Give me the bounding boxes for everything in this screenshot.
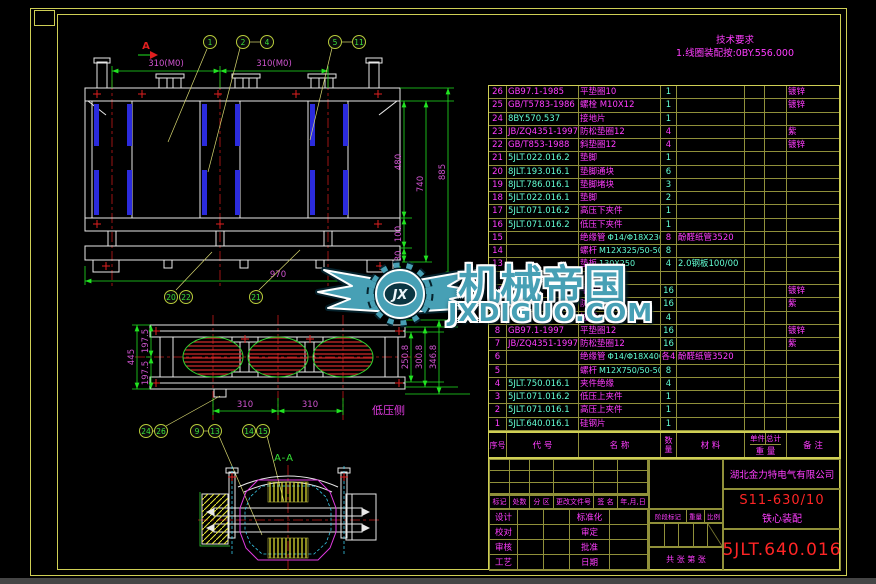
cell-tot [765,272,787,285]
cell-qty: 2 [661,192,677,205]
sign-label: 审核 [490,540,518,555]
cell-tot [765,258,787,271]
cell-qty: 4 [661,312,677,325]
rev-label: 年,月,日 [618,496,648,508]
cell-num: 1 [489,418,507,431]
cell-unit [745,365,765,378]
col-header-total-weight: 总计 [766,433,781,445]
cell-code: 5JLT.071.016.2 [507,219,579,232]
cell-code: 5JLT.071.016.2 [507,205,579,218]
revision-grid [489,459,649,495]
part-row: 23JB/ZQ4351-1997防松垫圈124紫 [489,126,839,139]
cell-qty [661,272,677,285]
cell-num: 19 [489,179,507,192]
front-dim-texts: 310(M0) 310(M0) 480 100 30 740 885 970 [148,59,448,280]
cell-tot [765,192,787,205]
parts-table-header: 序号 代 号 名 称 数量 材 料 单件 总计 重 量 备 注 [488,432,840,458]
svg-text:885: 885 [438,164,448,180]
cell-rem [787,258,839,271]
cell-tot [765,338,787,351]
cell-num: 24 [489,113,507,126]
cell-num [489,272,507,285]
title-block: 标记 处数 分 区 更改文件号 签 名 年,月,日 设计 标准化 校对 审定 审… [488,458,840,570]
svg-text:11: 11 [354,38,364,47]
cell-qty: 1 [661,113,677,126]
cell-unit [745,192,765,205]
cell-unit [745,86,765,99]
front-balloons: 1 2 4 5 11 20 22 21 [165,36,366,304]
cell-rem: 紫 [787,338,839,351]
cell-name: 低压下夹件 [579,219,661,232]
stage-cells [649,523,723,547]
cell-name: 绝缘管Φ14/Φ18X400.460 [579,351,661,364]
svg-text:14: 14 [244,427,254,436]
cell-qty: 1 [661,86,677,99]
scale-label: 比例 [705,510,722,522]
cell-name: 防松垫圈12 [579,126,661,139]
cell-num: 25 [489,99,507,112]
cell-num: 17 [489,205,507,218]
cell-tot [765,312,787,325]
rev-label: 分 区 [530,496,554,508]
cell-code [507,298,579,311]
cell-unit [745,391,765,404]
cell-rem: 紫 [787,126,839,139]
company-name: 湖北金力特电气有限公司 [723,459,841,489]
cell-rem: 镀锌 [787,139,839,152]
cell-num: 8 [489,325,507,338]
part-row: 198JLT.786.016.1垫脚堵块3 [489,179,839,192]
col-header-num: 序号 [489,433,507,457]
technical-requirements: 技术要求 1.线圈装配按:0BY.556.000 [640,34,830,60]
cell-rem [787,404,839,417]
cell-rem [787,179,839,192]
cell-code: 5JLT.022.016.2 [507,152,579,165]
sign-label: 设计 [490,510,518,525]
cell-unit [745,126,765,139]
cell-mat [677,205,745,218]
cell-tot [765,126,787,139]
part-row: 8GB97.1-1997平垫圈1216镀锌 [489,325,839,338]
cell-qty: 8 [661,365,677,378]
cell-code [507,351,579,364]
svg-text:740: 740 [416,176,426,192]
rev-label: 标记 [490,496,510,508]
part-row: 9拉带4 [489,312,839,325]
stage-label: 阶段标记 [650,510,687,522]
cell-name: 垫脚 [579,152,661,165]
svg-text:100: 100 [394,226,404,242]
svg-text:4: 4 [265,38,270,47]
cell-tot [765,152,787,165]
cell-code: 5JLT.750.016.1 [507,378,579,391]
sign-label: 校对 [490,525,518,540]
weight-label: 重量 [687,510,705,522]
cell-name: 垫脚 [579,192,661,205]
cell-name: 防松垫圈12 [579,338,661,351]
cell-mat [677,219,745,232]
revision-header: 标记 处数 分 区 更改文件号 签 名 年,月,日 [489,495,649,509]
cell-unit [745,258,765,271]
cell-rem [787,391,839,404]
svg-text:250.8: 250.8 [401,345,411,369]
cell-qty: 1 [661,219,677,232]
cell-code: GB/T853-1988 [507,139,579,152]
svg-text:A: A [142,41,150,52]
col-header-remark: 备 注 [787,433,839,457]
tech-req-line: 1.线圈装配按:0BY.556.000 [640,47,830,60]
cell-num: 18 [489,192,507,205]
cell-qty: 4 [661,126,677,139]
window-edge [0,578,876,584]
svg-text:1: 1 [208,38,213,47]
part-row: 22GB/T853-1988斜垫圈124镀锌 [489,139,839,152]
cell-unit [745,113,765,126]
cell-mat [677,139,745,152]
cell-unit [745,219,765,232]
cell-unit [745,325,765,338]
cell-name: 螺杆M12X750/50-50 [579,365,661,378]
cell-mat [677,272,745,285]
cell-mat: 2.0钢板100/00 [677,258,745,271]
cell-name: 螺杆M12X325/50-50 [579,245,661,258]
cell-mat [677,391,745,404]
cell-qty: 1 [661,152,677,165]
cell-mat [677,179,745,192]
cell-code: 8JLT.786.016.1 [507,179,579,192]
cell-mat [677,285,745,298]
svg-text:9: 9 [195,427,200,436]
cell-tot [765,285,787,298]
lv-side-label: 低压侧 [372,404,405,417]
cell-name: 斜垫圈12 [579,139,661,152]
cell-rem [787,365,839,378]
cell-qty: 4 [661,258,677,271]
cell-tot [765,325,787,338]
cell-rem [787,232,839,245]
svg-text:197.5: 197.5 [141,361,151,385]
scale-diagonal [708,524,722,546]
cell-name: 螺栓 M10X12 [579,99,661,112]
svg-text:300.8: 300.8 [415,345,425,369]
cell-unit [745,166,765,179]
empty-box [649,459,723,509]
cell-rem: 镀锌 [787,285,839,298]
stage-header: 阶段标记 重量 比例 [649,509,723,523]
cell-mat [677,126,745,139]
sign-label: 标准化 [570,510,610,525]
svg-text:346.8: 346.8 [429,345,439,369]
col-header-weight-label: 重 量 [756,445,776,457]
cell-unit [745,418,765,431]
cell-unit [745,272,765,285]
cell-code [507,232,579,245]
sign-label: 工艺 [490,555,518,570]
cell-tot [765,365,787,378]
cell-num: 20 [489,166,507,179]
svg-text:21: 21 [251,293,261,302]
cell-rem [787,166,839,179]
cell-num: 23 [489,126,507,139]
drawing-title: 铁心装配 [762,510,802,525]
part-row: 25JLT.071.016.1高压上夹件1 [489,404,839,417]
svg-text:310: 310 [302,400,318,410]
cell-qty: 1 [661,404,677,417]
part-row: 11平垫圈1016镀锌 [489,285,839,298]
cell-code [507,365,579,378]
cell-code [507,285,579,298]
cell-qty: 1 [661,205,677,218]
cell-mat [677,245,745,258]
cell-qty: 16 [661,298,677,311]
cell-num: 14 [489,245,507,258]
cell-qty: 8 [661,232,677,245]
svg-text:480: 480 [394,154,404,170]
cell-tot [765,351,787,364]
cell-rem [787,351,839,364]
part-row: 10防松垫圈1016紫 [489,298,839,311]
part-row: 45JLT.750.016.1夹件绝缘4 [489,378,839,391]
cell-name: 绝缘管Φ14/Φ18X230 [579,232,661,245]
cell-mat [677,99,745,112]
sign-label: 审定 [570,525,610,540]
tech-req-title: 技术要求 [640,34,830,47]
sheet-count: 共 张 第 张 [649,547,723,571]
cell-name: 防松垫圈10 [579,298,661,311]
model-box: S11-630/10 铁心装配 [723,489,841,529]
col-header-qty: 数量 [661,433,677,457]
svg-text:15: 15 [258,427,268,436]
cell-qty: 8 [661,245,677,258]
rev-label: 更改文件号 [554,496,594,508]
cell-mat: 酚醛纸管3520 [677,232,745,245]
cell-unit [745,245,765,258]
cell-code: 5JLT.071.016.2 [507,391,579,404]
cell-name: 平垫圈10 [579,285,661,298]
cell-name: 夹件绝缘 [579,378,661,391]
cell-mat [677,192,745,205]
cell-code [507,312,579,325]
cell-rem: 镀锌 [787,325,839,338]
part-row: 15绝缘管Φ14/Φ18X2308酚醛纸管3520 [489,232,839,245]
col-header-code: 代 号 [507,433,579,457]
svg-text:26: 26 [156,427,166,436]
cell-name: 平垫圈10 [579,86,661,99]
cell-rem: 镀锌 [787,86,839,99]
cell-unit [745,205,765,218]
cell-tot [765,86,787,99]
rev-label: 签 名 [594,496,618,508]
cell-qty: 1 [661,391,677,404]
cell-unit [745,285,765,298]
part-row: 14螺杆M12X325/50-508 [489,245,839,258]
svg-text:310(M0): 310(M0) [148,59,184,69]
cell-code: 8BY.570.537 [507,113,579,126]
cell-num: 13 [489,258,507,271]
cell-tot [765,179,787,192]
cell-qty: 各4 [661,351,677,364]
cell-mat [677,312,745,325]
cell-qty: 4 [661,378,677,391]
svg-text:22: 22 [181,293,191,302]
cell-rem [787,378,839,391]
parts-table: 26GB97.1-1985平垫圈101镀锌25GB/T5783-1986螺栓 M… [488,85,840,432]
cell-num: 21 [489,152,507,165]
cell-code: JB/ZQ4351-1997 [507,126,579,139]
section-label: A-A [274,453,294,464]
cell-rem: 镀锌 [787,99,839,112]
cell-mat [677,325,745,338]
col-header-material: 材 料 [677,433,745,457]
sign-label: 日期 [570,555,610,570]
part-row: 25GB/T5783-1986螺栓 M10X121镀锌 [489,99,839,112]
part-row: 165JLT.071.016.2低压下夹件1 [489,219,839,232]
col-header-name: 名 称 [579,433,661,457]
cell-code: 5JLT.022.016.1 [507,192,579,205]
cell-rem [787,418,839,431]
part-row: 215JLT.022.016.2垫脚1 [489,152,839,165]
svg-text:13: 13 [210,427,220,436]
cell-mat [677,86,745,99]
cell-code: JB/ZQ4351-1997 [507,338,579,351]
sign-label: 批准 [570,540,610,555]
cell-num: 9 [489,312,507,325]
svg-text:24: 24 [141,427,151,436]
cell-num: 10 [489,298,507,311]
col-header-weight: 单件 总计 重 量 [745,433,787,457]
cell-unit [745,139,765,152]
cell-mat [677,152,745,165]
col-header-unit-weight: 单件 [750,433,766,445]
cell-tot [765,404,787,417]
svg-text:310(M0): 310(M0) [256,59,292,69]
cell-mat [677,418,745,431]
cell-num: 11 [489,285,507,298]
part-row: 35JLT.071.016.2低压上夹件1 [489,391,839,404]
coil-sections [183,337,373,377]
cell-name: 低压上夹件 [579,391,661,404]
cell-code: GB97.1-1997 [507,325,579,338]
cell-tot [765,219,787,232]
svg-text:20: 20 [166,293,176,302]
winding-hatch-top [268,482,308,502]
cell-tot [765,232,787,245]
cell-name: 高压下夹件 [579,205,661,218]
cell-tot [765,113,787,126]
cell-name: 平垫圈12 [579,325,661,338]
cell-unit [745,99,765,112]
svg-text:310: 310 [237,400,253,410]
svg-text:2: 2 [241,38,246,47]
cell-mat [677,404,745,417]
cell-code [507,258,579,271]
cell-code: 5JLT.071.016.1 [507,404,579,417]
winding-hatch-bottom [268,538,308,558]
part-row: 185JLT.022.016.1垫脚2 [489,192,839,205]
cell-code: 8JLT.193.016.1 [507,166,579,179]
svg-text:5: 5 [333,38,338,47]
product-model: S11-630/10 [739,493,824,508]
cell-rem [787,152,839,165]
cell-num: 16 [489,219,507,232]
cell-tot [765,245,787,258]
cell-qty: 16 [661,285,677,298]
cell-qty: 1 [661,99,677,112]
cell-name: 接地片 [579,113,661,126]
part-row: 208JLT.193.016.1垫脚通块6 [489,166,839,179]
cell-rem [787,245,839,258]
cell-name: 拉带 [579,312,661,325]
section-view: A-A [198,453,380,570]
svg-text:30: 30 [394,251,404,262]
cell-mat [677,113,745,126]
drawing-number: 5JLT.640.016 [723,529,841,571]
section-arrow-a: A [138,41,158,59]
cell-rem [787,192,839,205]
part-row: 15JLT.640.016.1硅钢片1 [489,418,839,431]
cell-num: 6 [489,351,507,364]
cell-tot [765,378,787,391]
part-row: 248BY.570.537接地片1 [489,113,839,126]
rev-label: 处数 [510,496,530,508]
cell-num: 7 [489,338,507,351]
part-row: 6绝缘管Φ14/Φ18X400.460各4酚醛纸管3520 [489,351,839,364]
part-row: 26GB97.1-1985平垫圈101镀锌 [489,86,839,99]
cell-name: 硅钢片 [579,418,661,431]
part-row: 7JB/ZQ4351-1997防松垫圈1216紫 [489,338,839,351]
part-row: 175JLT.071.016.2高压下夹件1 [489,205,839,218]
part-row: 13垫板130X25042.0钢板100/00 [489,258,839,271]
cell-num: 22 [489,139,507,152]
cell-unit [745,351,765,364]
part-row [489,272,839,285]
cell-tot [765,205,787,218]
cell-mat: 酚醛纸管3520 [677,351,745,364]
cad-sheet: A 310(M0) 310(M0) 480 100 30 740 885 [0,0,876,584]
cell-num: 15 [489,232,507,245]
cell-tot [765,298,787,311]
cell-name: 垫脚通块 [579,166,661,179]
cell-unit [745,404,765,417]
cell-tot [765,139,787,152]
cell-qty: 4 [661,139,677,152]
cell-num: 5 [489,365,507,378]
cell-num: 2 [489,404,507,417]
cell-tot [765,391,787,404]
cell-num: 26 [489,86,507,99]
signature-grid: 设计 标准化 校对 审定 审核 批准 工艺 日期 [489,509,649,571]
cell-tot [765,418,787,431]
cell-qty: 16 [661,338,677,351]
cell-rem [787,312,839,325]
cell-rem [787,272,839,285]
cell-unit [745,232,765,245]
cell-unit [745,179,765,192]
front-view: A 310(M0) 310(M0) 480 100 30 740 885 [85,36,454,304]
cell-unit [745,152,765,165]
cell-qty: 3 [661,179,677,192]
cell-rem [787,205,839,218]
cell-unit [745,298,765,311]
svg-text:445: 445 [127,349,137,365]
cell-code: GB97.1-1985 [507,86,579,99]
end-insulation-block [202,494,228,544]
cell-mat [677,166,745,179]
cell-tot [765,99,787,112]
cell-rem [787,219,839,232]
cell-code [507,272,579,285]
cell-name: 垫板130X250 [579,258,661,271]
